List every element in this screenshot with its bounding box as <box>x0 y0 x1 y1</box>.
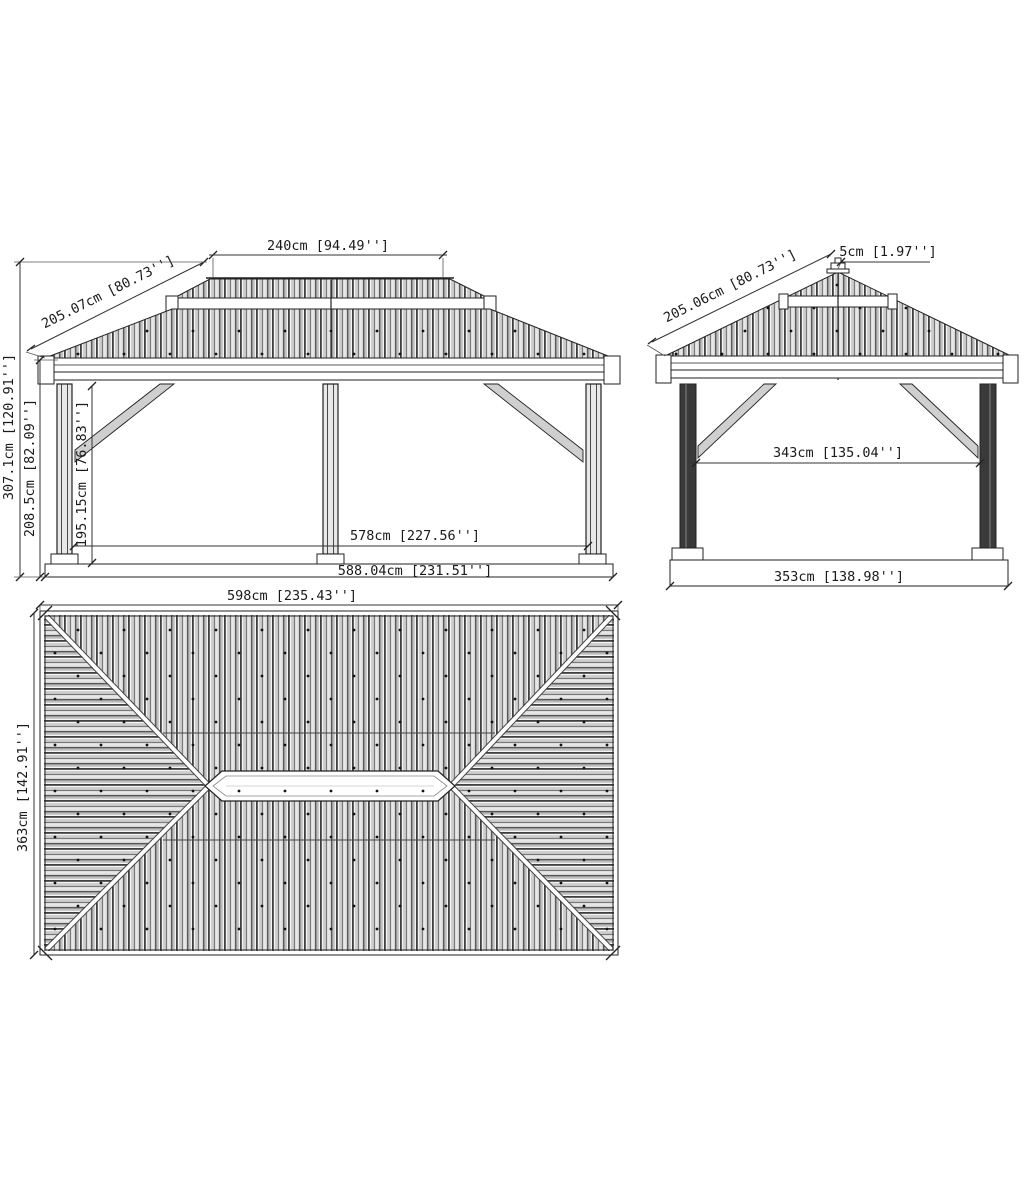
svg-text:578cm [227.56'']: 578cm [227.56''] <box>350 528 480 544</box>
side-left-brace <box>698 384 776 458</box>
side-eave-beam <box>656 355 1018 383</box>
front-elevation-view: 240cm [94.49''] 205.07cm [80.73''] 307.1… <box>1 238 620 581</box>
dim-plan-roof-width: 598cm [235.43''] <box>36 588 622 611</box>
front-right-brace <box>484 384 583 462</box>
front-eave-beam <box>38 356 620 384</box>
dim-side-finial-height: 5cm [1.97''] <box>837 244 937 269</box>
svg-text:240cm [94.49'']: 240cm [94.49''] <box>267 238 389 254</box>
svg-text:588.04cm [231.51'']: 588.04cm [231.51''] <box>338 563 492 579</box>
svg-text:598cm [235.43'']: 598cm [235.43''] <box>227 588 357 604</box>
svg-text:353cm [138.98'']: 353cm [138.98''] <box>774 569 904 585</box>
svg-text:195.15cm [76.83'']: 195.15cm [76.83''] <box>74 401 90 547</box>
gazebo-dimension-drawing: 240cm [94.49''] 205.07cm [80.73''] 307.1… <box>0 0 1029 1200</box>
dim-front-clearance-height: 195.15cm [76.83''] <box>74 382 96 567</box>
side-elevation-view: 5cm [1.97''] 205.06cm [80.73''] 343cm [1… <box>647 244 1018 590</box>
side-posts <box>680 384 996 548</box>
svg-text:363cm [142.91'']: 363cm [142.91''] <box>15 722 31 852</box>
dim-plan-roof-depth: 363cm [142.91''] <box>15 609 38 959</box>
dim-front-eave-height: 208.5cm [82.09''] <box>22 356 58 581</box>
dim-side-post-span: 343cm [135.04''] <box>690 445 986 467</box>
svg-text:307.1cm [120.91'']: 307.1cm [120.91''] <box>1 354 17 500</box>
dim-front-upper-roof-width: 240cm [94.49''] <box>209 238 447 278</box>
svg-text:208.5cm [82.09'']: 208.5cm [82.09''] <box>22 399 38 537</box>
svg-text:343cm [135.04'']: 343cm [135.04''] <box>773 445 903 461</box>
roof-plan-view: 598cm [235.43''] 363cm [142.91''] <box>15 588 622 960</box>
side-right-brace <box>900 384 978 458</box>
drawing-canvas: 240cm [94.49''] 205.07cm [80.73''] 307.1… <box>0 0 1029 1200</box>
front-base <box>45 554 613 577</box>
svg-text:5cm [1.97'']: 5cm [1.97''] <box>839 244 937 260</box>
